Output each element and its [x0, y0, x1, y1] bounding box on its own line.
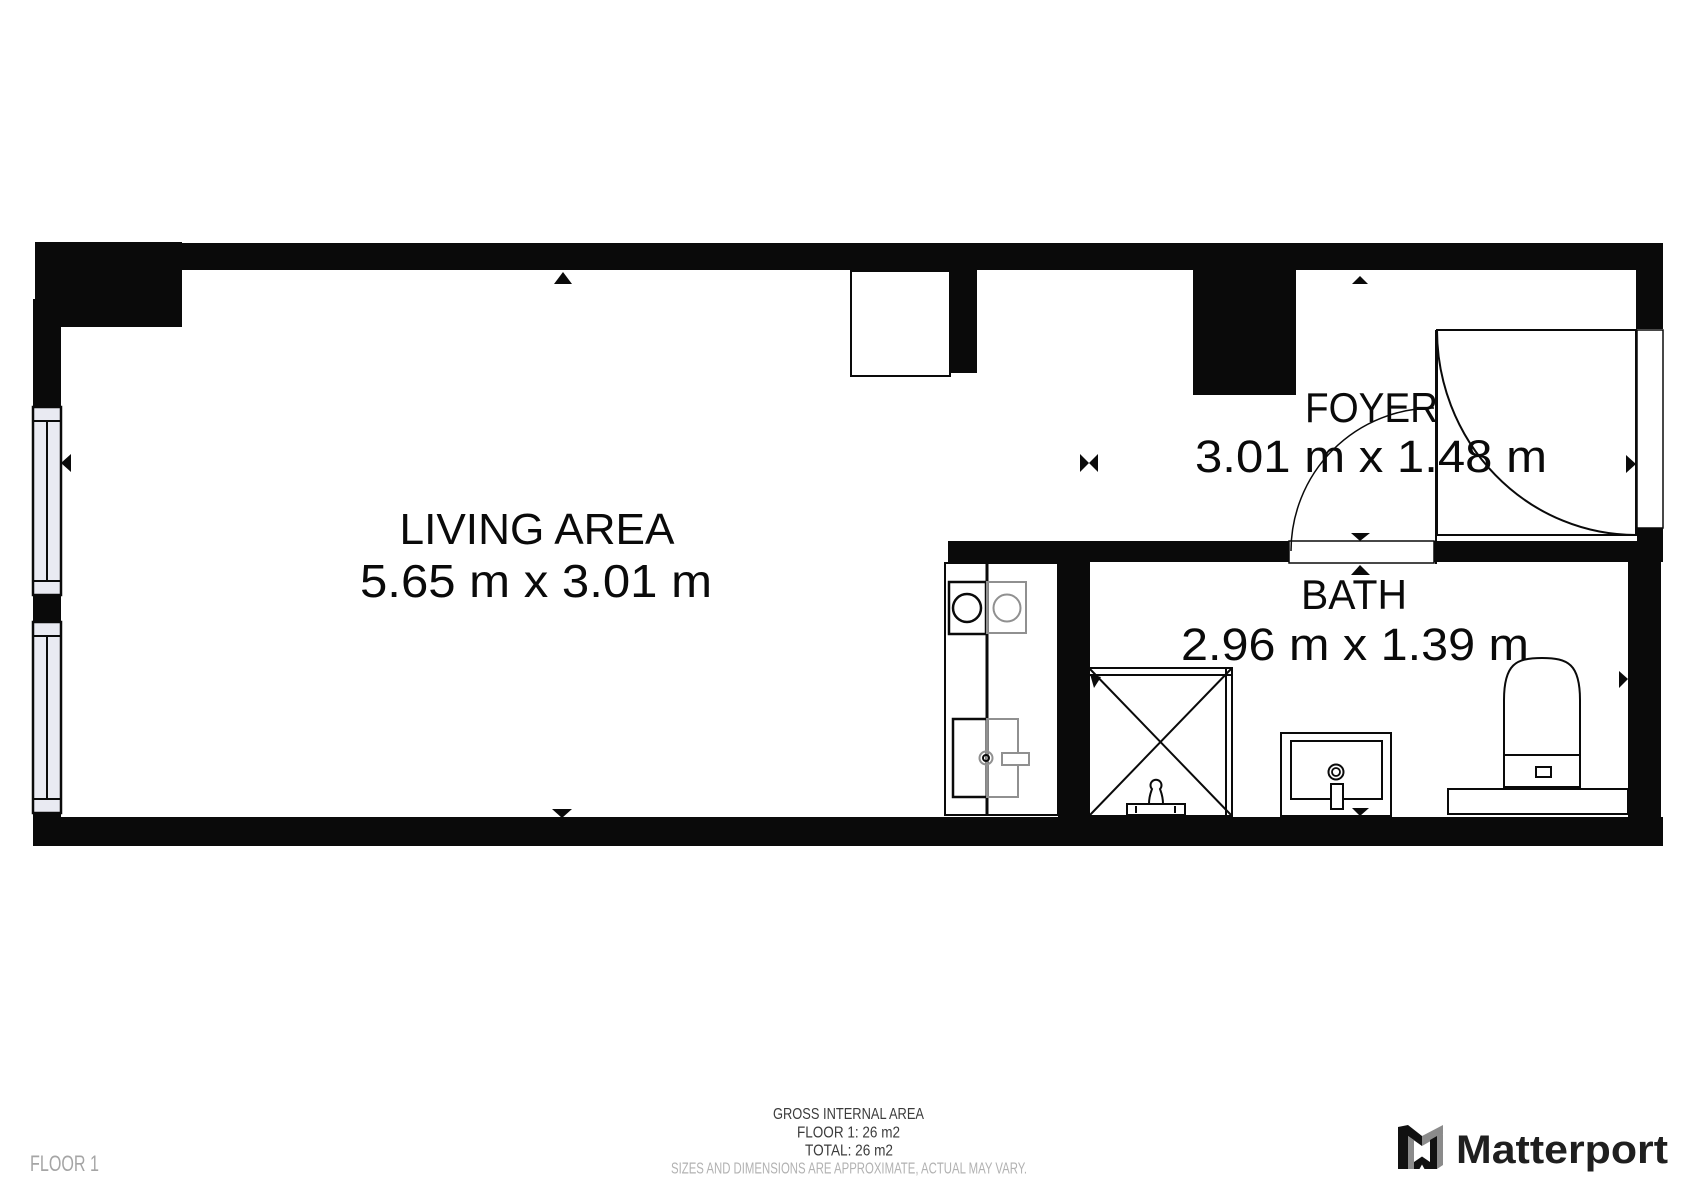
svg-text:GROSS INTERNAL AREA: GROSS INTERNAL AREA [773, 1106, 924, 1123]
svg-text:5.65 m x 3.01 m: 5.65 m x 3.01 m [360, 555, 712, 607]
svg-text:2.96 m x 1.39 m: 2.96 m x 1.39 m [1181, 619, 1529, 670]
svg-text:3.01 m x 1.48 m: 3.01 m x 1.48 m [1195, 431, 1547, 482]
svg-text:FLOOR 1: 26 m2: FLOOR 1: 26 m2 [797, 1125, 900, 1142]
svg-text:FLOOR 1: FLOOR 1 [30, 1151, 99, 1176]
svg-text:SIZES AND DIMENSIONS ARE APPRO: SIZES AND DIMENSIONS ARE APPROXIMATE, AC… [671, 1161, 1027, 1178]
svg-text:TOTAL: 26 m2: TOTAL: 26 m2 [805, 1143, 893, 1160]
svg-text:LIVING AREA: LIVING AREA [400, 505, 676, 554]
svg-text:BATH: BATH [1301, 571, 1407, 618]
svg-text:Matterport: Matterport [1456, 1128, 1668, 1172]
svg-text:FOYER: FOYER [1305, 384, 1438, 431]
